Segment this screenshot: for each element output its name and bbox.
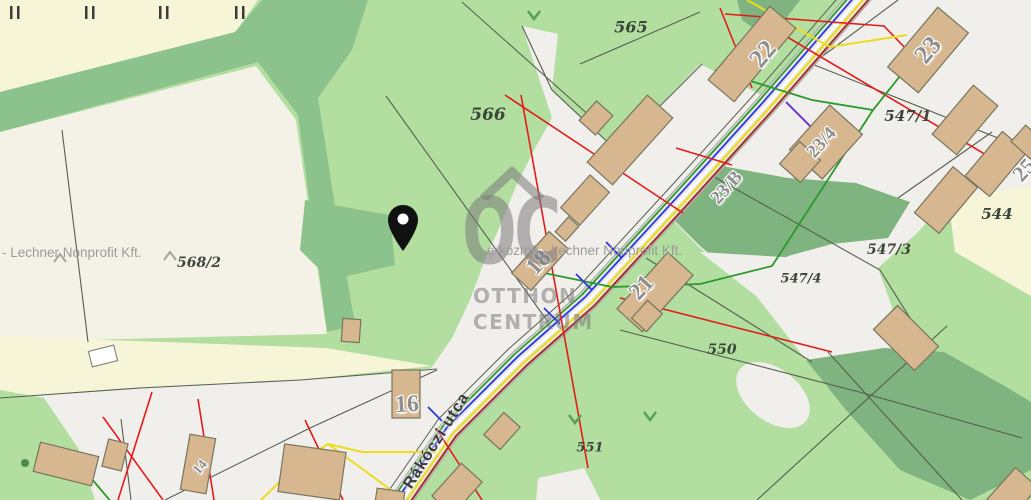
attribution-left: - Lechner Nonprofit Kft.	[2, 245, 142, 260]
location-pin[interactable]	[388, 205, 418, 252]
attribution-center: e-közmű - Lechner Nonprofit Kft.	[487, 243, 682, 258]
map-canvas[interactable]: 565 566 547/1 544 547/3 547/4 550 551 56…	[0, 0, 1031, 500]
tree-symbol	[21, 459, 29, 467]
